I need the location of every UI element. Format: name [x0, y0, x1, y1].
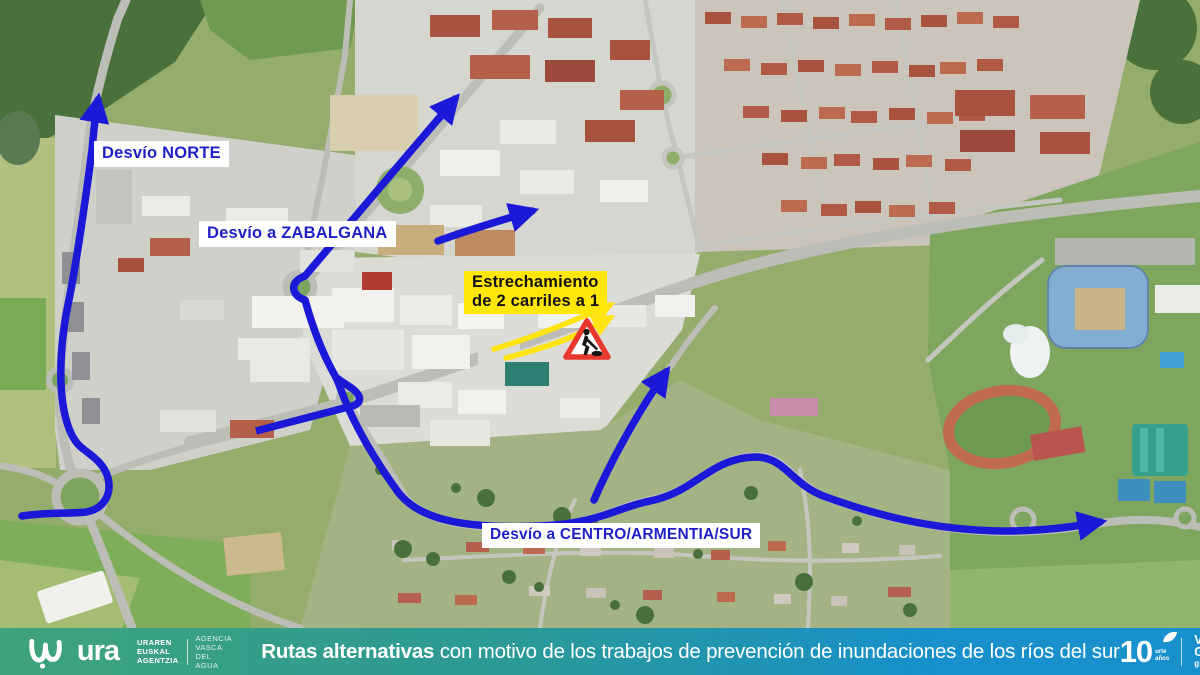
- anniversary-number: 10: [1120, 638, 1152, 666]
- vitoria-gasteiz-logo: VITORIA GASTEIZ ! green capital: [1194, 635, 1200, 668]
- footer-bar: ura URAREN EUSKAL AGENTZIA AGENCIA VASCA…: [0, 628, 1200, 675]
- footer-message-bold: Rutas alternativas: [261, 640, 434, 663]
- label-estrechamiento-line2: de 2 carriles a 1: [472, 292, 599, 311]
- satellite-map: Desvío NORTE Desvío a ZABALGANA Estrecha…: [0, 0, 1200, 628]
- city-name-line2: GASTEIZ: [1194, 647, 1200, 659]
- ura-agency-block: ura URAREN EUSKAL AGENTZIA AGENCIA VASCA…: [26, 632, 233, 672]
- anniversary-units: urte años: [1155, 649, 1169, 662]
- tennis-court: [1154, 481, 1186, 503]
- label-desvio-centro: Desvío a CENTRO/ARMENTIA/SUR: [482, 523, 760, 548]
- ura-logo-icon: [26, 632, 65, 672]
- footer-message: Rutas alternativas con motivo de los tra…: [233, 640, 1119, 664]
- tennis-court: [1118, 479, 1150, 501]
- logo-divider: [1181, 638, 1182, 666]
- footer-logos: 10 urte años VITORIA GASTEIZ !: [1120, 635, 1200, 668]
- agency-name-basque: URAREN EUSKAL AGENTZIA: [137, 638, 179, 665]
- agency-name-spanish: AGENCIA VASCA DEL AGUA: [196, 634, 234, 670]
- agency-divider: [187, 639, 188, 665]
- ura-logo-text: ura: [77, 637, 119, 666]
- label-desvio-zabalgana: Desvío a ZABALGANA: [199, 221, 396, 247]
- label-desvio-norte: Desvío NORTE: [94, 141, 229, 167]
- green-capital-tagline: green capital: [1194, 660, 1200, 668]
- leaf-icon: [1162, 631, 1178, 643]
- anniversary-10-logo: 10 urte años: [1120, 638, 1170, 666]
- label-estrechamiento: Estrechamiento de 2 carriles a 1: [464, 271, 607, 314]
- infographic-detour-map: Desvío NORTE Desvío a ZABALGANA Estrecha…: [0, 0, 1200, 675]
- label-estrechamiento-line1: Estrechamiento: [472, 273, 599, 292]
- footer-message-rest: con motivo de los trabajos de prevención…: [434, 640, 1119, 663]
